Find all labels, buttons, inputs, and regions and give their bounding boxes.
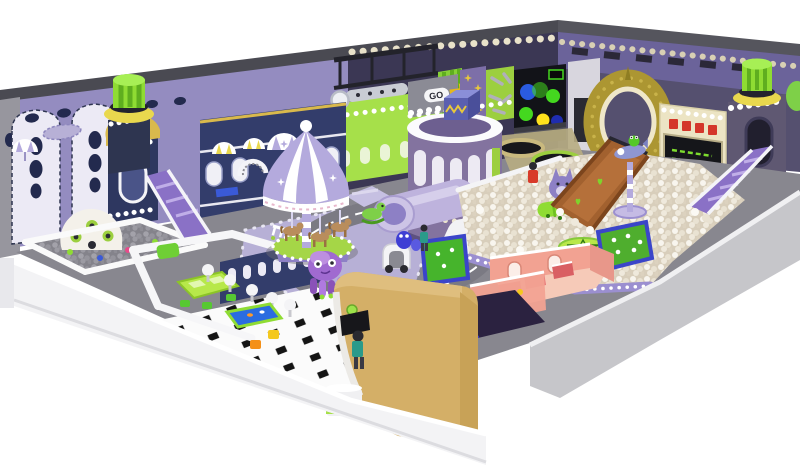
kid-figure (420, 225, 428, 252)
kid-chair-orange (250, 340, 261, 349)
kid-chair-yellow (268, 330, 279, 339)
playground-render: GO (0, 0, 800, 465)
playground-screenshot: GO (0, 0, 800, 465)
trampoline (499, 140, 543, 156)
score-display (549, 70, 563, 79)
kid-figure (528, 162, 538, 183)
frog-figure (629, 136, 640, 147)
bone-panel (486, 66, 514, 122)
top-cube (444, 90, 480, 120)
go-sign-label: GO (429, 90, 444, 102)
blue-frame-panel (422, 236, 468, 284)
canopy-finial (300, 120, 312, 132)
outer-wall-left-cap (0, 258, 14, 308)
